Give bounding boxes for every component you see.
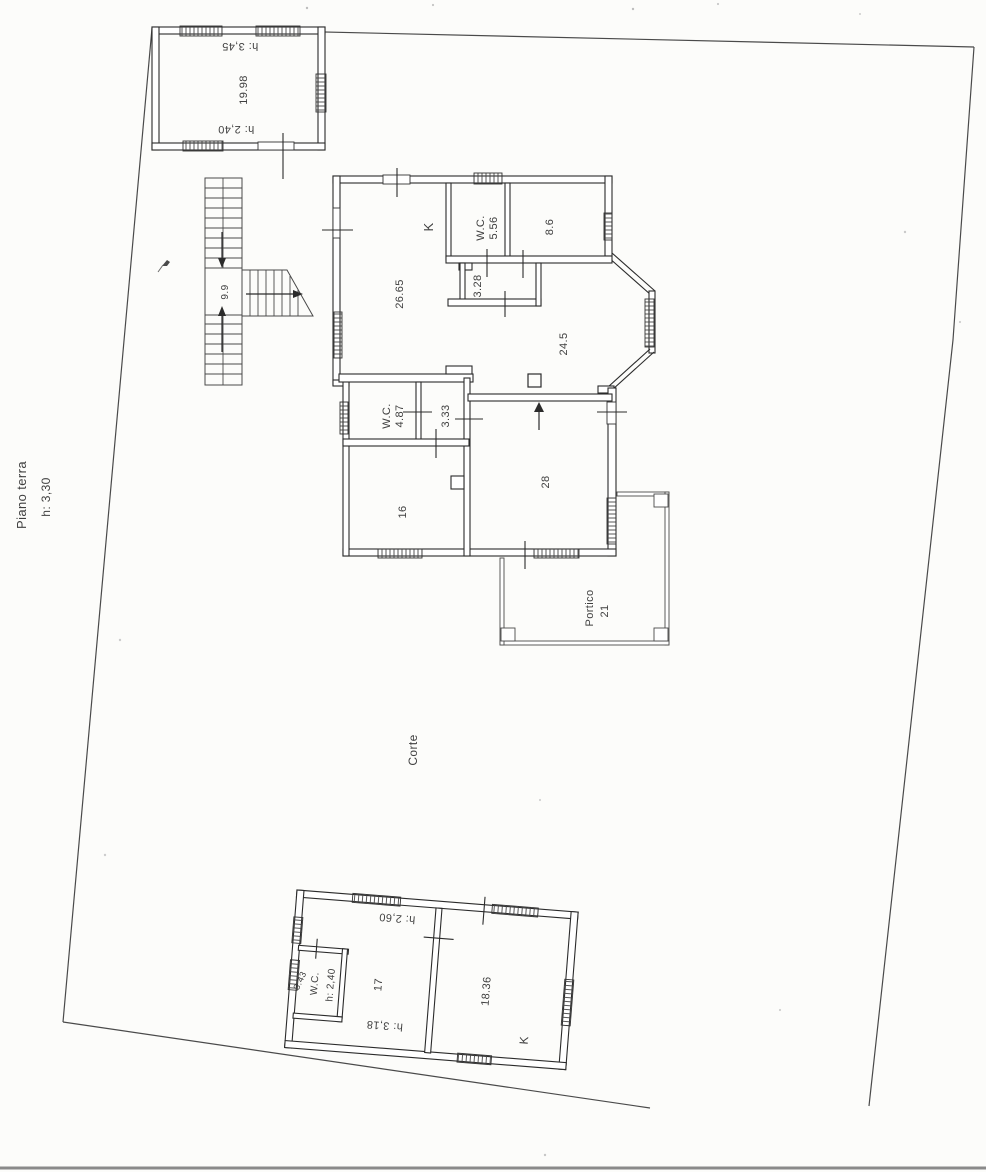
label-annex-top-height-front: h: 3,45 (222, 40, 258, 52)
label-annex-bottom-wc: W.C. (309, 972, 322, 996)
stair-direction-arrow-down (218, 232, 226, 268)
label-floor-height: h: 3,30 (39, 477, 53, 517)
label-stairs-area: 9.9 (220, 284, 231, 299)
label-room17-area: 17 (372, 978, 385, 992)
portico-pillar (501, 628, 515, 641)
stair-side-branch (242, 270, 313, 316)
label-hall2-area: 3.33 (440, 404, 452, 427)
stair-direction-arrow-up (218, 306, 226, 352)
annex-bottom-building: h: 2,60 17 h: 3,18 W.C. h: 2,40 3.43 18.… (284, 882, 580, 1071)
entrance-arrow (534, 402, 544, 430)
label-hall-area: 3.28 (472, 274, 484, 297)
property-boundary (63, 28, 974, 1108)
label-dining-area: 24.5 (558, 332, 570, 355)
pencil-mark (158, 260, 170, 272)
label-wc1: W.C. (475, 215, 487, 240)
label-annex-bottom-height-front: h: 2,60 (378, 911, 415, 926)
label-kitchen: K (421, 222, 436, 231)
label-annex-top-height-back: h: 2,40 (218, 123, 254, 135)
label-floor-title: Piano terra (14, 461, 29, 529)
label-wc2: W.C. (381, 403, 393, 428)
label-portico: Portico (584, 589, 596, 626)
portico-pillar (654, 494, 668, 507)
label-annex-bottom-wc-height: h: 2,40 (324, 968, 338, 1002)
label-portico-area: 21 (599, 604, 611, 617)
label-room28-area: 28 (540, 475, 552, 488)
label-room86-area: 8.6 (544, 219, 556, 236)
label-annex-bottom-height-back: h: 3,18 (366, 1018, 403, 1033)
stair-steps-lower (205, 315, 242, 374)
label-room16-area: 16 (397, 505, 409, 518)
scanned-floor-plan-page: h: 2,60 17 h: 3,18 W.C. h: 2,40 3.43 18.… (0, 0, 986, 1172)
label-room1836-area: 18.36 (480, 976, 494, 1006)
label-annex-bottom-kitchen: K (517, 1036, 532, 1045)
label-annex-top-area: 19.98 (238, 75, 250, 105)
label-wc2-area: 4.87 (394, 404, 406, 427)
label-wc1-area: 5.56 (488, 216, 500, 239)
stair-steps-upper (205, 188, 242, 268)
floor-plan-canvas: h: 2,60 17 h: 3,18 W.C. h: 2,40 3.43 18.… (0, 0, 986, 1172)
external-staircase (205, 178, 313, 385)
label-courtyard: Corte (406, 734, 420, 765)
label-living-area: 26.65 (394, 279, 406, 309)
portico-pillar (654, 628, 668, 641)
column-pillar (528, 374, 541, 387)
